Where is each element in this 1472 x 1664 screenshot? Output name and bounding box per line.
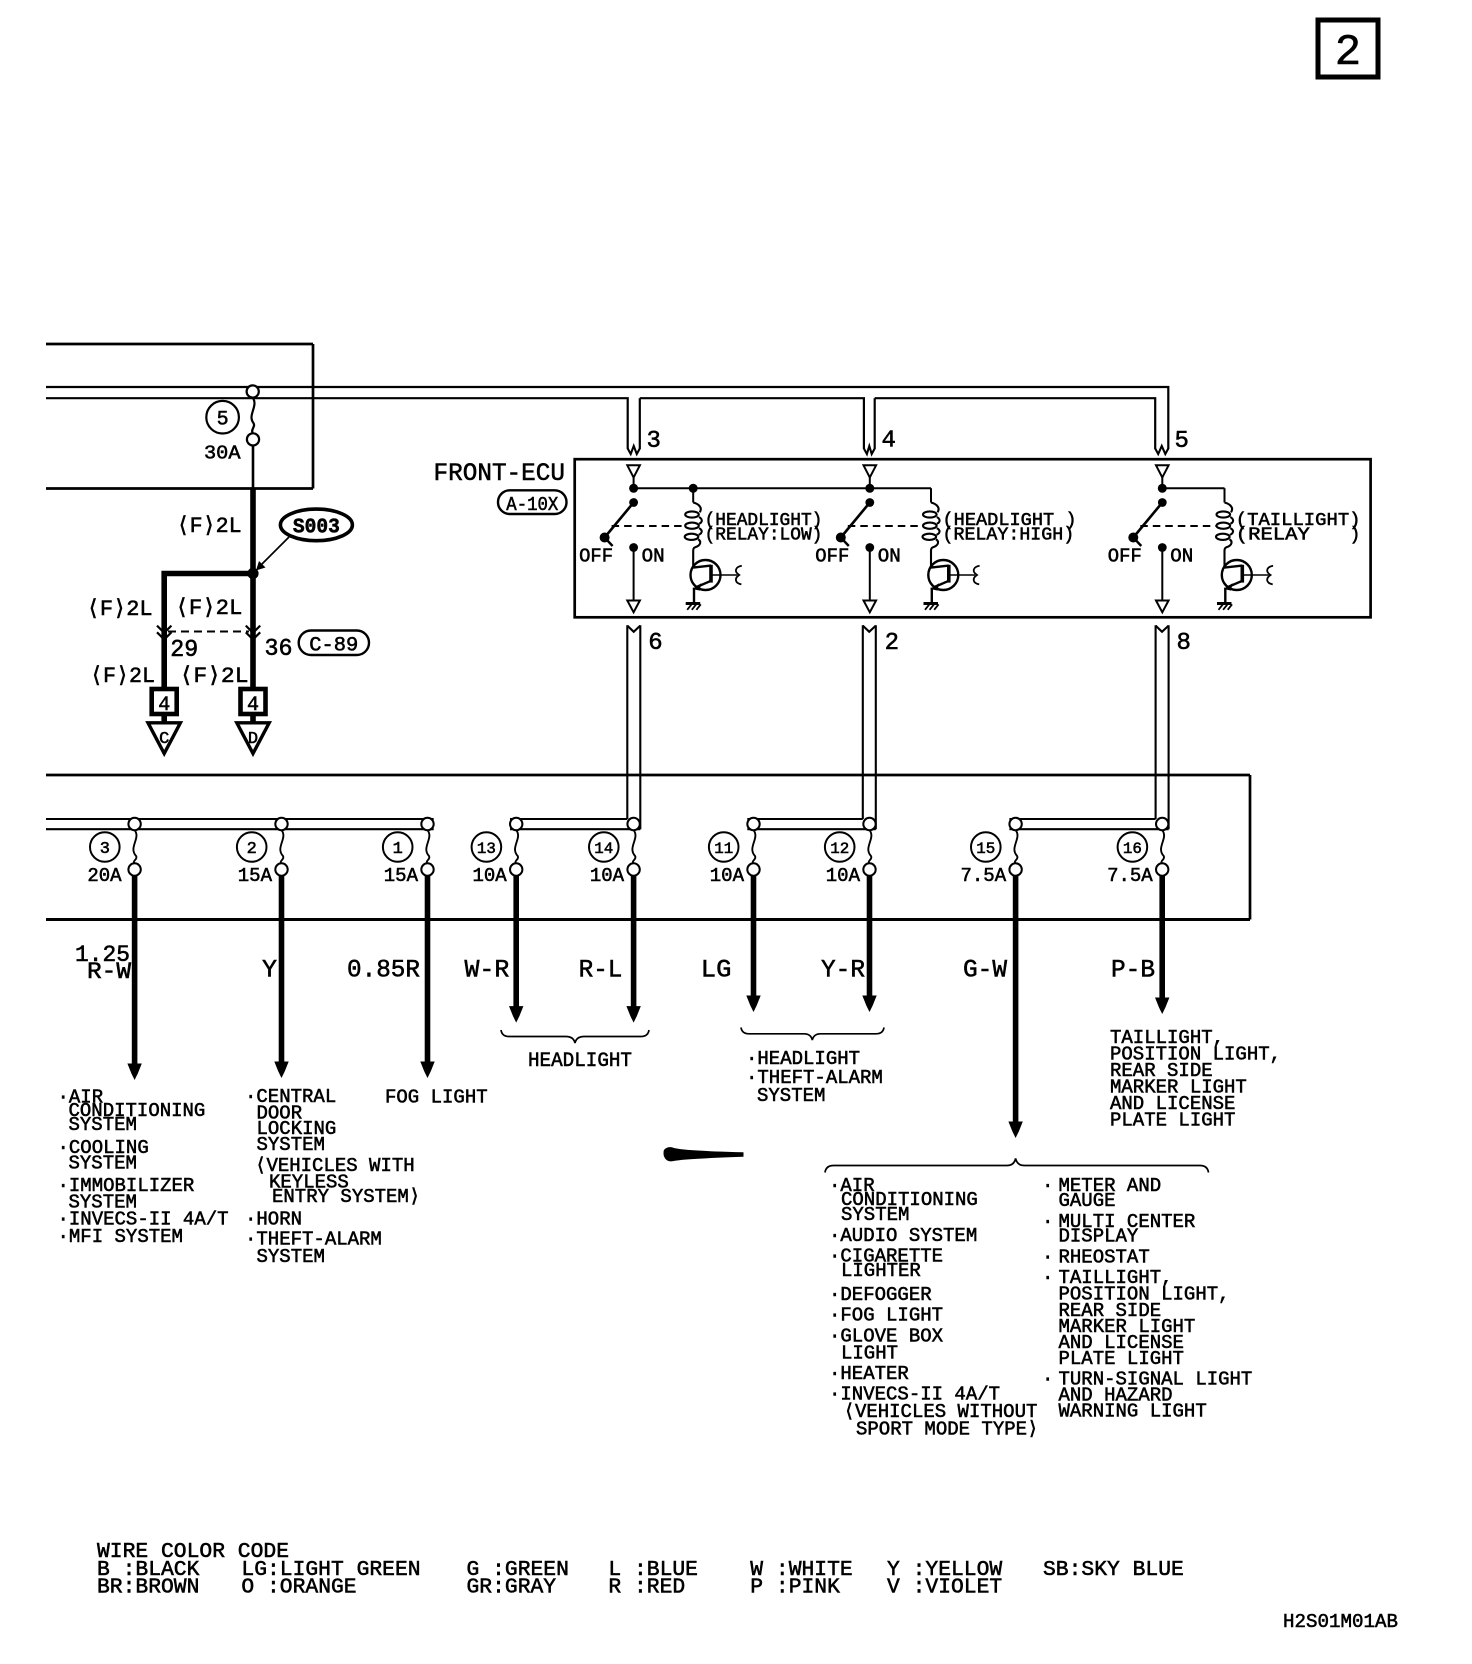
svg-text:PLATE LIGHT: PLATE LIGHT [1059, 1348, 1184, 1370]
svg-text:): ) [1350, 526, 1361, 546]
svg-text:W-R: W-R [465, 956, 510, 985]
svg-text:A-10X: A-10X [506, 494, 559, 516]
svg-text:·AUDIO SYSTEM: ·AUDIO SYSTEM [829, 1225, 977, 1247]
svg-text:⟨F⟩2L: ⟨F⟩2L [175, 596, 242, 621]
svg-text:R-L: R-L [579, 956, 623, 985]
svg-text:13: 13 [477, 840, 496, 858]
svg-text:6: 6 [648, 630, 662, 657]
svg-text:ON: ON [878, 546, 901, 568]
svg-text:14: 14 [594, 840, 613, 858]
svg-text:SYSTEM: SYSTEM [841, 1204, 909, 1226]
svg-text:7.5A: 7.5A [1107, 865, 1153, 887]
svg-text:(RELAY:HIGH): (RELAY:HIGH) [943, 526, 1075, 546]
svg-text:ENTRY SYSTEM⟩: ENTRY SYSTEM⟩ [272, 1186, 420, 1208]
svg-text:·MFI SYSTEM: ·MFI SYSTEM [58, 1226, 183, 1248]
svg-text:·: · [1042, 1267, 1053, 1289]
svg-text:2: 2 [247, 840, 257, 859]
svg-text:SPORT MODE TYPE⟩: SPORT MODE TYPE⟩ [856, 1419, 1038, 1441]
svg-text:G-W: G-W [963, 956, 1007, 985]
svg-text:5: 5 [217, 408, 229, 431]
svg-text:4: 4 [158, 694, 170, 717]
svg-text:⟨F⟩2L: ⟨F⟩2L [87, 597, 153, 622]
svg-text:PLATE LIGHT: PLATE LIGHT [1110, 1110, 1235, 1132]
svg-text:R-W: R-W [87, 959, 131, 985]
svg-text:·: · [1042, 1211, 1053, 1233]
svg-text:1: 1 [393, 840, 403, 859]
svg-text:⟨F⟩2L: ⟨F⟩2L [90, 664, 155, 689]
svg-text:DISPLAY: DISPLAY [1059, 1226, 1139, 1248]
svg-text:OFF: OFF [815, 546, 849, 568]
svg-text:·HEATER: ·HEATER [829, 1363, 909, 1385]
svg-text:·: · [1042, 1246, 1053, 1268]
svg-text:·HORN: ·HORN [245, 1208, 302, 1230]
svg-text:OFF: OFF [579, 546, 613, 568]
svg-text:·: · [1042, 1369, 1053, 1391]
svg-text:10A: 10A [472, 865, 507, 887]
svg-text:12: 12 [830, 840, 849, 858]
svg-text:SYSTEM: SYSTEM [69, 1114, 137, 1136]
svg-text:15A: 15A [384, 865, 419, 887]
svg-text:R :RED: R :RED [608, 1577, 685, 1600]
svg-text:SYSTEM: SYSTEM [257, 1134, 325, 1156]
svg-text:⟨F⟩2L: ⟨F⟩2L [180, 664, 249, 689]
svg-text:SYSTEM: SYSTEM [757, 1085, 825, 1107]
svg-text:0.85R: 0.85R [347, 956, 420, 985]
svg-text:·DEFOGGER: ·DEFOGGER [829, 1284, 932, 1306]
svg-text:V :VIOLET: V :VIOLET [887, 1577, 1002, 1600]
svg-text:RHEOSTAT: RHEOSTAT [1059, 1246, 1150, 1268]
svg-text:(RELAY:LOW): (RELAY:LOW) [705, 526, 823, 546]
svg-text:·FOG LIGHT: ·FOG LIGHT [829, 1305, 943, 1327]
svg-text:36: 36 [265, 636, 293, 663]
svg-text:ON: ON [1170, 546, 1193, 568]
svg-text:C-89: C-89 [309, 635, 358, 658]
svg-text:⟨F⟩2L: ⟨F⟩2L [177, 514, 242, 539]
svg-text:15A: 15A [238, 865, 273, 887]
svg-text:SYSTEM: SYSTEM [69, 1152, 137, 1174]
svg-text:(RELAY: (RELAY [1236, 526, 1310, 546]
svg-text:10A: 10A [826, 865, 861, 887]
svg-text:S003: S003 [293, 517, 340, 540]
svg-text:GAUGE: GAUGE [1059, 1190, 1116, 1212]
svg-text:10A: 10A [710, 865, 745, 887]
svg-text:15: 15 [976, 840, 995, 858]
svg-text:FOG LIGHT: FOG LIGHT [385, 1087, 488, 1109]
svg-text:4: 4 [882, 428, 896, 455]
svg-text:Y-R: Y-R [821, 956, 865, 985]
svg-text:11: 11 [714, 840, 733, 858]
svg-text:ON: ON [642, 546, 665, 568]
svg-text:·: · [1042, 1175, 1053, 1197]
svg-text:3: 3 [647, 428, 661, 455]
svg-text:SYSTEM: SYSTEM [257, 1246, 325, 1268]
svg-text:GR:GRAY: GR:GRAY [467, 1577, 557, 1600]
svg-text:OFF: OFF [1108, 546, 1142, 568]
svg-text:FRONT-ECU: FRONT-ECU [434, 459, 566, 488]
svg-text:LIGHTER: LIGHTER [841, 1260, 921, 1282]
svg-text:29: 29 [170, 637, 198, 664]
svg-text:H2S01M01AB: H2S01M01AB [1283, 1611, 1398, 1633]
svg-text:5: 5 [1175, 428, 1189, 455]
svg-text:SB:SKY BLUE: SB:SKY BLUE [1043, 1559, 1184, 1582]
svg-text:16: 16 [1123, 840, 1142, 858]
svg-text:2: 2 [1335, 28, 1361, 78]
svg-text:O :ORANGE: O :ORANGE [241, 1577, 356, 1600]
svg-text:Y: Y [262, 956, 277, 985]
svg-text:8: 8 [1177, 630, 1191, 657]
svg-text:P-B: P-B [1111, 956, 1155, 985]
svg-text:HEADLIGHT: HEADLIGHT [528, 1050, 632, 1073]
svg-text:30A: 30A [204, 443, 241, 465]
svg-text:WARNING LIGHT: WARNING LIGHT [1059, 1401, 1207, 1423]
svg-text:P :PINK: P :PINK [750, 1577, 840, 1600]
svg-text:10A: 10A [590, 865, 625, 887]
svg-text:LIGHT: LIGHT [841, 1343, 898, 1365]
svg-text:2: 2 [885, 630, 899, 657]
svg-text:3: 3 [100, 840, 110, 859]
svg-text:D: D [248, 730, 258, 749]
svg-text:20A: 20A [87, 865, 122, 887]
svg-text:BR:BROWN: BR:BROWN [97, 1577, 199, 1600]
svg-text:C: C [159, 730, 169, 749]
svg-text:LG: LG [701, 956, 732, 985]
svg-text:7.5A: 7.5A [960, 865, 1006, 887]
svg-text:4: 4 [247, 694, 259, 717]
